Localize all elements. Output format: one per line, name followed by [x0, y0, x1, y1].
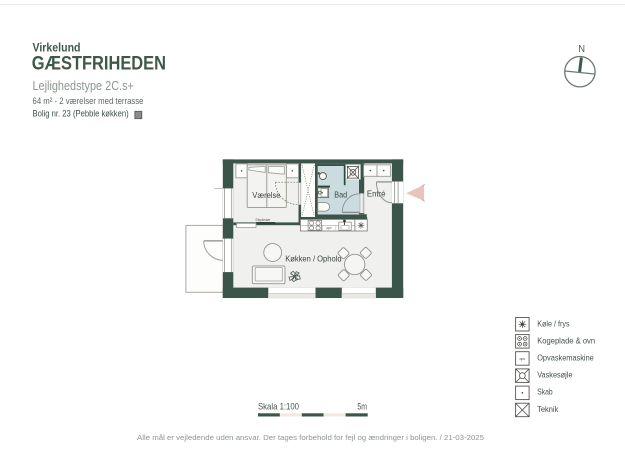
svg-text:Skala 1:100: Skala 1:100	[258, 402, 299, 412]
svg-text:Bad: Bad	[334, 191, 347, 200]
svg-text:Bolig nr. 23 (Pebble køkken): Bolig nr. 23 (Pebble køkken)	[33, 109, 129, 120]
svg-text:Køkken / Ophold: Køkken / Ophold	[285, 254, 342, 263]
svg-text:Opvaskemaskine: Opvaskemaskine	[537, 353, 594, 363]
svg-text:Entré: Entré	[367, 189, 386, 198]
svg-text:opv: opv	[519, 357, 525, 361]
svg-text:64 m² - 2 værelser med terrass: 64 m² - 2 værelser med terrasse	[33, 96, 144, 106]
svg-text:GÆSTFRIHEDEN: GÆSTFRIHEDEN	[32, 53, 166, 75]
svg-text:opv: opv	[326, 226, 332, 230]
svg-text:Vaskesøjle: Vaskesøjle	[537, 370, 572, 380]
svg-text:5m: 5m	[357, 402, 367, 412]
svg-text:Køle / frys: Køle / frys	[537, 318, 569, 328]
svg-text:Teknik: Teknik	[537, 404, 559, 414]
svg-text:Skab: Skab	[537, 387, 553, 397]
svg-text:Værelse: Værelse	[252, 191, 281, 200]
svg-text:N: N	[578, 44, 585, 55]
svg-text:Kogeplade & ovn: Kogeplade & ovn	[537, 335, 595, 345]
svg-text:Alle mål er vejledende uden an: Alle mål er vejledende uden ansvar. Der …	[137, 433, 484, 442]
svg-text:Skydedør: Skydedør	[255, 218, 271, 222]
svg-text:Lejlighedstype 2C.s+: Lejlighedstype 2C.s+	[33, 78, 134, 93]
